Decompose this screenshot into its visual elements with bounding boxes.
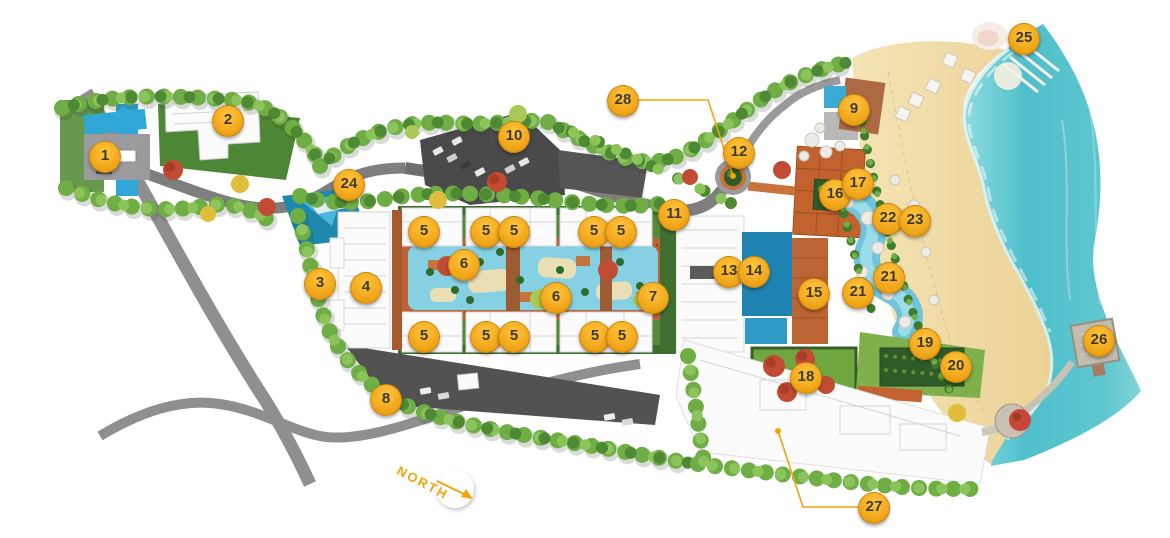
map-marker-4[interactable]: 4 xyxy=(350,272,382,304)
map-marker-10[interactable]: 10 xyxy=(498,121,530,153)
map-marker-17[interactable]: 17 xyxy=(842,168,874,200)
resort-master-plan: 1234555555555566789101112131415161718192… xyxy=(0,0,1170,538)
map-marker-20[interactable]: 20 xyxy=(940,351,972,383)
map-marker-5[interactable]: 5 xyxy=(498,216,530,248)
map-marker-23[interactable]: 23 xyxy=(899,205,931,237)
map-marker-26[interactable]: 26 xyxy=(1083,325,1115,357)
map-marker-12[interactable]: 12 xyxy=(723,137,755,169)
map-marker-6[interactable]: 6 xyxy=(448,249,480,281)
map-marker-7[interactable]: 7 xyxy=(637,282,669,314)
map-marker-15[interactable]: 15 xyxy=(798,278,830,310)
map-marker-9[interactable]: 9 xyxy=(838,94,870,126)
site-plan-illustration xyxy=(0,0,1170,538)
map-marker-1[interactable]: 1 xyxy=(89,141,121,173)
map-marker-5[interactable]: 5 xyxy=(408,216,440,248)
map-marker-28[interactable]: 28 xyxy=(607,85,639,117)
map-marker-6[interactable]: 6 xyxy=(540,282,572,314)
map-marker-24[interactable]: 24 xyxy=(333,169,365,201)
map-marker-2[interactable]: 2 xyxy=(212,105,244,137)
map-marker-21[interactable]: 21 xyxy=(873,262,905,294)
map-marker-8[interactable]: 8 xyxy=(370,384,402,416)
map-marker-25[interactable]: 25 xyxy=(1008,23,1040,55)
map-marker-3[interactable]: 3 xyxy=(304,268,336,300)
map-marker-5[interactable]: 5 xyxy=(605,216,637,248)
map-marker-5[interactable]: 5 xyxy=(408,321,440,353)
map-marker-14[interactable]: 14 xyxy=(738,256,770,288)
map-marker-11[interactable]: 11 xyxy=(658,199,690,231)
map-marker-27[interactable]: 27 xyxy=(858,492,890,524)
map-marker-19[interactable]: 19 xyxy=(909,328,941,360)
map-marker-5[interactable]: 5 xyxy=(606,321,638,353)
map-marker-21[interactable]: 21 xyxy=(842,277,874,309)
map-marker-18[interactable]: 18 xyxy=(790,362,822,394)
map-marker-5[interactable]: 5 xyxy=(498,321,530,353)
